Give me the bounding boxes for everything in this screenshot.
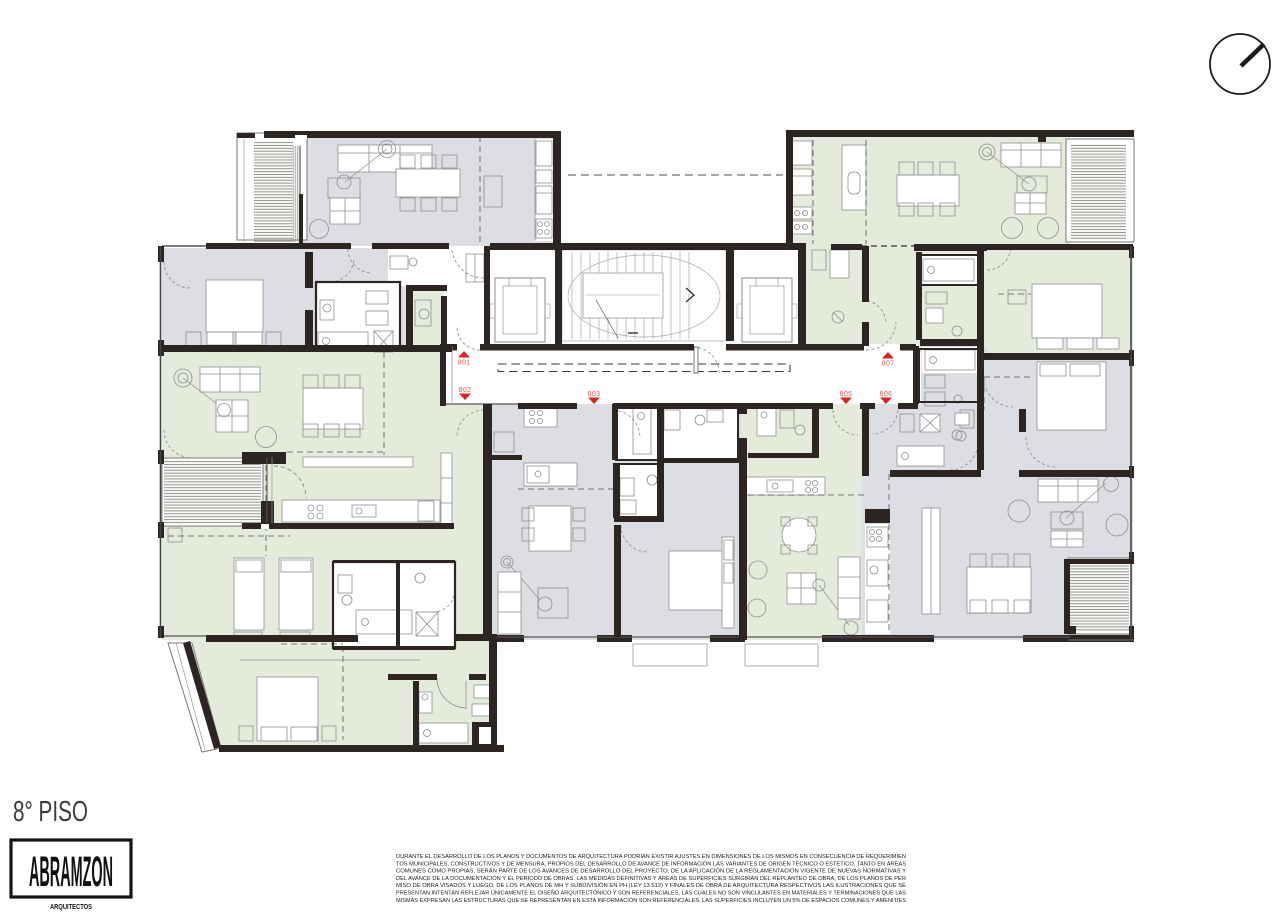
svg-text:ABRAMZON: ABRAMZON [29,848,113,896]
svg-text:801: 801 [458,358,471,367]
svg-text:ARQUITECTOS: ARQUITECTOS [50,904,92,911]
svg-text:MISO DE OBRA VISADOS Y LUEGO,: MISO DE OBRA VISADOS Y LUEGO, DE LOS PLA… [396,882,906,889]
svg-text:COMUNES COMO PROPIAS, SERÁN PA: COMUNES COMO PROPIAS, SERÁN PARTE DE LOS… [396,868,906,875]
svg-text:802: 802 [459,385,472,394]
svg-text:PRESENTAN INTENTAN REFLEJAR ÚN: PRESENTAN INTENTAN REFLEJAR ÚNICAMENTE E… [396,890,906,897]
svg-text:DURANTE EL DESARROLLO DE LOS P: DURANTE EL DESARROLLO DE LOS PLANOS Y DO… [396,853,906,860]
svg-text:807: 807 [882,359,895,368]
svg-text:8° PISO: 8° PISO [13,796,88,828]
svg-text:MISMAS EXPRESAN LAS ESTRUCTURA: MISMAS EXPRESAN LAS ESTRUCTURAS QUE SE R… [396,897,906,904]
svg-text:806: 806 [880,389,893,398]
svg-text:805: 805 [840,389,853,398]
svg-text:TOS MUNICIPALES, CONSTRUCTIVOS: TOS MUNICIPALES, CONSTRUCTIVOS Y DE MENS… [396,860,906,867]
svg-text:803: 803 [588,389,601,398]
svg-text:DEL AVANCE DE LA DOCUMENTACIÓN: DEL AVANCE DE LA DOCUMENTACIÓN Y EL PERÍ… [396,875,906,882]
